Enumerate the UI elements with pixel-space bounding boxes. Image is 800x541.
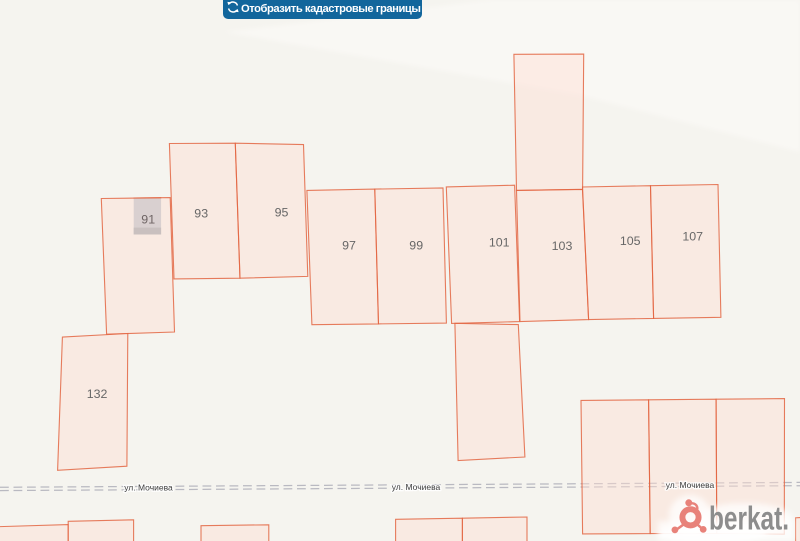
svg-text:97: 97 [342,239,356,253]
svg-text:103: 103 [552,239,573,253]
svg-text:ул. Мочиева: ул. Мочиева [124,483,173,493]
svg-text:ул. Мочиева: ул. Мочиева [666,480,715,490]
svg-text:91: 91 [141,213,155,227]
svg-text:99: 99 [409,239,423,253]
svg-text:132: 132 [87,387,108,401]
svg-text:93: 93 [194,207,208,221]
svg-text:107: 107 [682,230,703,244]
svg-text:ул. Мочиева: ул. Мочиева [392,482,441,492]
svg-text:105: 105 [620,234,641,248]
svg-text:95: 95 [275,205,289,219]
svg-text:101: 101 [489,235,510,249]
svg-text:berkat.: berkat. [709,500,789,537]
